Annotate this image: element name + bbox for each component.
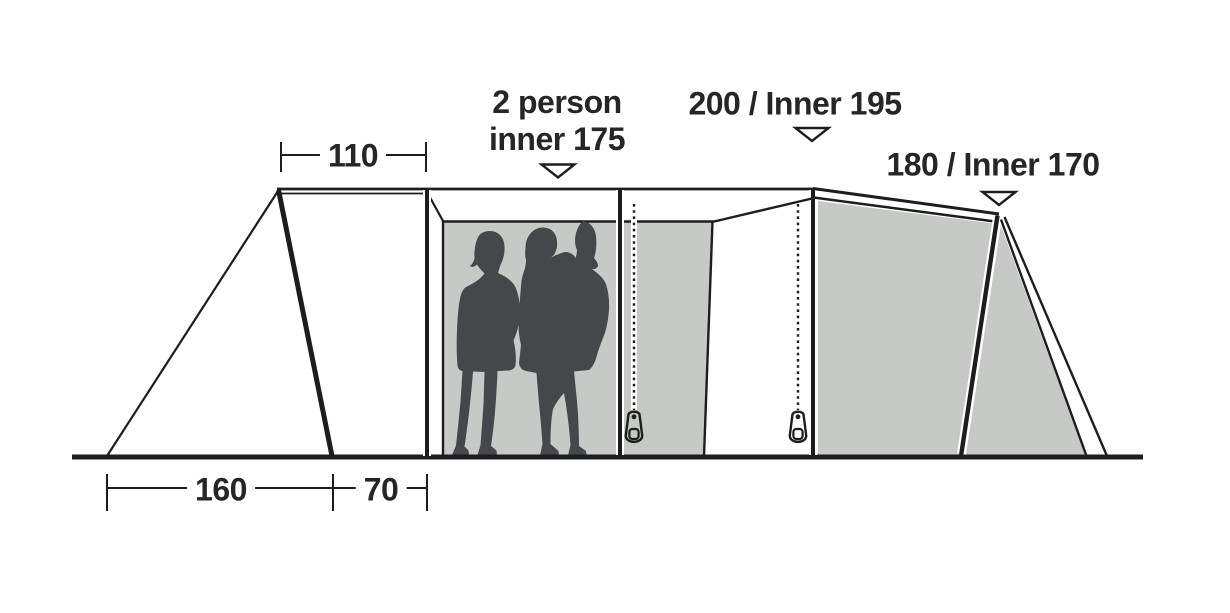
zipper-door-right <box>790 204 806 442</box>
zipper-pull-right-icon <box>790 412 806 442</box>
pole-left-slanted <box>279 190 333 456</box>
dimension-value-110: 110 <box>320 138 386 175</box>
label-right-room: 180 / Inner 170 <box>886 147 1099 184</box>
label-left-room-line2: inner 175 <box>489 121 625 158</box>
pointer-mid-room-icon <box>796 128 829 141</box>
tent-dimensions-diagram: 2 person inner 175 200 / Inner 195 180 /… <box>0 0 1230 613</box>
label-left-room: 2 person inner 175 <box>489 84 625 158</box>
dimension-value-70: 70 <box>356 472 407 509</box>
pointer-right-room-icon <box>983 192 1016 205</box>
pointer-left-room-icon <box>542 165 575 178</box>
dimension-value-160: 160 <box>187 472 255 509</box>
label-mid-room: 200 / Inner 195 <box>688 86 901 123</box>
inner-room-right <box>818 201 1086 456</box>
label-left-room-line1: 2 person <box>489 84 625 121</box>
guy-line-left <box>107 191 278 456</box>
